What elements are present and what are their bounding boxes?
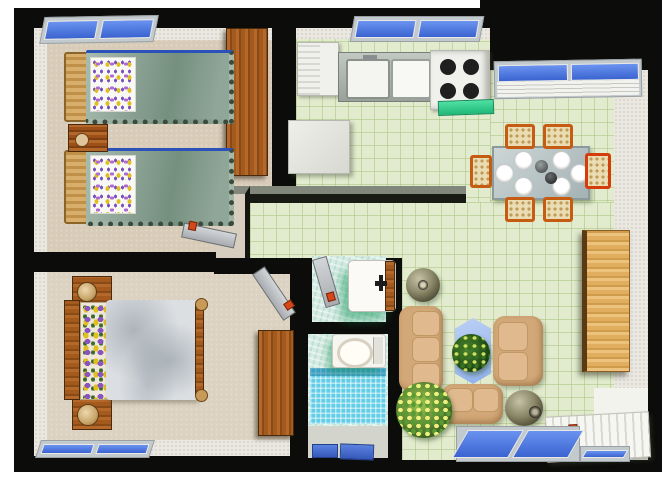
dining-chair [585, 153, 611, 189]
dining-window [494, 59, 643, 100]
pillow [90, 57, 136, 112]
shower-floor [310, 368, 386, 424]
plate [514, 177, 533, 196]
master-bedroom-window [35, 440, 155, 458]
refrigerator [297, 42, 339, 96]
window-pane [44, 20, 99, 40]
bed-post [195, 298, 208, 311]
nightstand-knob [75, 133, 89, 147]
toilet-seat [337, 338, 373, 368]
sofa-three-seat [399, 306, 443, 392]
sink-wood-trim [385, 261, 395, 311]
dining-chair [505, 197, 535, 222]
dining-table [492, 146, 590, 200]
bathroom-door-handle [326, 291, 336, 302]
plate [552, 151, 571, 170]
window-pane [95, 444, 149, 454]
stove-burner [440, 83, 456, 99]
rattan-shelf [582, 230, 630, 372]
headboard [64, 52, 88, 122]
centerpiece-bowl [535, 160, 548, 173]
twin-bed-2 [64, 148, 234, 226]
coffee-table-plant [452, 334, 490, 372]
floor-plan [0, 0, 667, 485]
sofa-cushion [498, 322, 528, 351]
stove-burner [463, 59, 479, 75]
wall-kitchen-living [248, 186, 466, 203]
lamp [77, 404, 99, 426]
sink-basin-left [346, 59, 390, 99]
window-pane [582, 450, 629, 458]
dining-chair [470, 155, 492, 188]
double-bed [64, 300, 204, 400]
faucet [363, 55, 377, 59]
kitchen-island [288, 120, 350, 174]
sink-faucet-stem [379, 275, 383, 291]
centerpiece-bowl [545, 172, 557, 184]
sink-counter [338, 52, 434, 102]
window-pane [498, 64, 568, 82]
bath-mat-large [340, 443, 375, 460]
toilet [332, 334, 386, 368]
dresser [258, 330, 294, 436]
window-louvers [497, 80, 639, 97]
hallway [250, 202, 402, 258]
bath-mat-small [312, 444, 338, 458]
dining-chair [543, 197, 573, 222]
living-floor-window-small [580, 446, 630, 462]
vase-opening [418, 280, 428, 290]
twin-bedroom-door-handle [188, 221, 198, 231]
sofa-cushion [498, 352, 528, 381]
sink-basin-right [391, 59, 431, 99]
window-pane [417, 20, 479, 38]
jug-neck [529, 406, 541, 418]
round-vase [406, 268, 440, 302]
wall-bathroom-divider [312, 322, 386, 334]
headboard [64, 300, 80, 400]
loveseat [493, 316, 543, 386]
bed-post [195, 389, 208, 402]
headboard [64, 150, 88, 224]
window-pane [571, 63, 639, 81]
window-pane [512, 430, 584, 458]
bed-frame-right [195, 304, 204, 396]
twin-bed-1 [64, 50, 234, 124]
master-bedroom-wall-face-left [34, 272, 47, 456]
nightstand-twin [68, 124, 108, 152]
kitchen-green-mat [438, 99, 494, 116]
jug-vase [505, 390, 543, 426]
pillow [90, 155, 136, 214]
stove-burner [440, 59, 456, 75]
lamp [77, 282, 97, 302]
twin-bedroom-wall-face-left [34, 28, 47, 252]
plate [495, 164, 514, 183]
sofa-cushion [473, 388, 499, 412]
window-pane [99, 19, 154, 39]
sofa-cushion [412, 337, 440, 362]
bathroom-sink [348, 260, 396, 312]
dining-chair [543, 124, 573, 149]
stove-burner [463, 83, 479, 99]
wall-between-bedrooms [14, 252, 216, 272]
living-floor-window [456, 426, 580, 462]
toilet-tank [373, 337, 383, 364]
kitchen-window [350, 16, 485, 42]
duvet [106, 300, 198, 400]
large-potted-plant [396, 382, 452, 438]
window-pane [354, 20, 416, 38]
nightstand-master-bottom [72, 396, 112, 430]
sofa-cushion [412, 311, 440, 336]
twin-bedroom-window [39, 15, 159, 44]
dining-chair [505, 124, 535, 149]
window-pane [40, 444, 94, 454]
plate [514, 151, 533, 170]
